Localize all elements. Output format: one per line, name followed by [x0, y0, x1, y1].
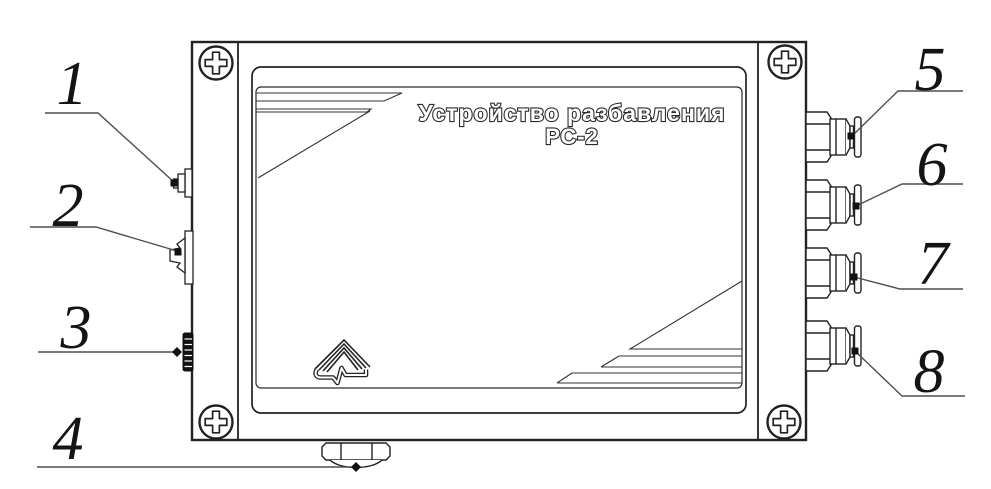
dilution-device-drawing: Устройство разбавления РС-2 [0, 0, 991, 489]
device-model: РС-2 [545, 124, 599, 149]
callout-1-label: 1 [57, 50, 88, 118]
callout-3-label: 3 [60, 294, 92, 362]
phillips-screw-icon [200, 406, 233, 439]
callout-7-arrow [851, 274, 858, 281]
callout-8-arrow [852, 348, 859, 355]
callout-7-label: 7 [918, 230, 952, 298]
callout-6-arrow [853, 203, 860, 210]
left-knurled-terminal [183, 333, 193, 371]
phillips-screw-icon [768, 406, 801, 439]
callout-5-label: 5 [915, 36, 946, 104]
device-title: Устройство разбавления [419, 100, 726, 126]
technical-drawing-page: Устройство разбавления РС-2 [0, 0, 991, 489]
callout-8-label: 8 [914, 338, 945, 406]
callout-6-label: 6 [917, 131, 948, 199]
callout-2-arrow [175, 249, 182, 256]
callout-1-arrow [171, 180, 178, 187]
front-panel: Устройство разбавления РС-2 [252, 67, 746, 413]
callout-5-arrow [848, 133, 855, 140]
callout-4-label: 4 [53, 405, 84, 473]
callout-2-label: 2 [53, 172, 84, 240]
phillips-screw-icon [769, 46, 802, 79]
phillips-screw-icon [200, 47, 233, 80]
